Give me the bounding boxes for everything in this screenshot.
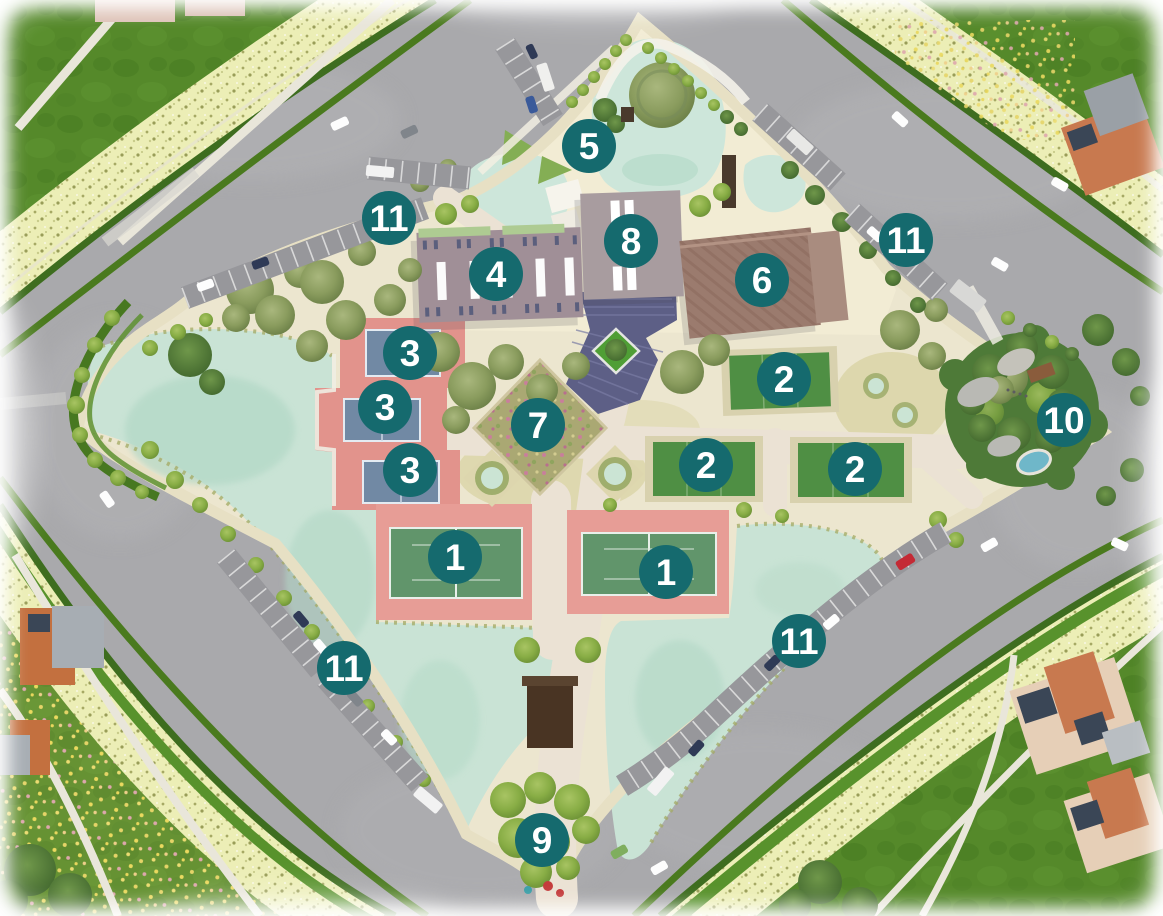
svg-text:1: 1 (445, 537, 466, 578)
svg-text:11: 11 (886, 220, 925, 261)
svg-text:10: 10 (1043, 400, 1084, 441)
svg-text:4: 4 (486, 254, 507, 295)
svg-text:8: 8 (621, 221, 642, 262)
svg-text:11: 11 (779, 621, 818, 662)
svg-text:3: 3 (400, 333, 421, 374)
svg-text:2: 2 (845, 449, 866, 490)
svg-text:2: 2 (696, 445, 717, 486)
svg-text:6: 6 (752, 260, 773, 301)
svg-text:7: 7 (528, 405, 549, 446)
svg-text:9: 9 (532, 820, 553, 861)
svg-text:5: 5 (579, 126, 600, 167)
svg-text:3: 3 (400, 450, 421, 491)
svg-text:3: 3 (375, 387, 396, 428)
svg-text:11: 11 (369, 198, 408, 239)
svg-text:11: 11 (324, 648, 363, 689)
svg-text:1: 1 (656, 552, 677, 593)
svg-text:2: 2 (774, 359, 795, 400)
